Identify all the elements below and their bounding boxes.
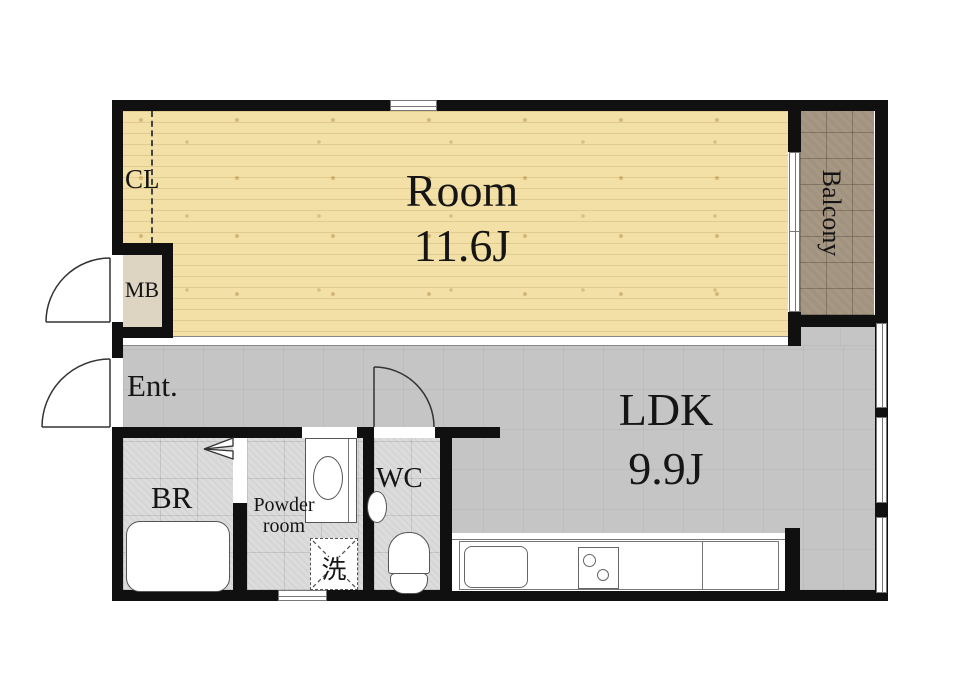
entrance-label: Ent. bbox=[127, 368, 178, 404]
powder-room-label: Powder room bbox=[243, 495, 325, 537]
ldk-label-group: LDK 9.9J bbox=[556, 380, 776, 498]
wc-door-arc bbox=[374, 367, 434, 427]
entrance-door-arc bbox=[42, 359, 110, 427]
balcony-label: Balcony bbox=[820, 163, 846, 263]
ldk-size-label: 9.9J bbox=[556, 439, 776, 498]
main-room-size-label: 11.6J bbox=[352, 218, 572, 273]
washer-label: 洗 bbox=[310, 550, 358, 586]
bathroom-label: BR bbox=[151, 480, 192, 516]
meter-box-label: MB bbox=[121, 277, 163, 303]
main-room-label: Room bbox=[352, 163, 572, 218]
ldk-label: LDK bbox=[556, 380, 776, 439]
door-symbols-overlay bbox=[0, 0, 974, 686]
bathroom-folding-door bbox=[204, 438, 233, 459]
main-room-label-group: Room 11.6J bbox=[352, 163, 572, 273]
closet-label: CL bbox=[125, 164, 160, 195]
mb-door-arc bbox=[46, 258, 110, 322]
wc-label: WC bbox=[376, 462, 423, 495]
floorplan-canvas: Room 11.6J LDK 9.9J Balcony Ent. CL MB B… bbox=[0, 0, 974, 686]
